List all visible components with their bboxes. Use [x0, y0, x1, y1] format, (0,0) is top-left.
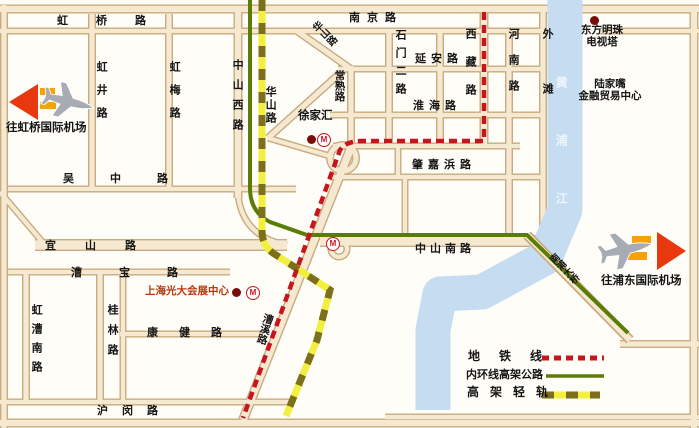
shanghai-transit-map: 虹桥路 南京路 华山路 华山路 中山西路 常熟路 石门二路 延安路 西藏路 河南…: [0, 0, 699, 428]
landmark-label-oriental-pearl: 东方明珠 电视塔: [570, 25, 634, 48]
road-label-henan: 河南路: [507, 28, 519, 106]
road-label-xizang: 西藏路: [464, 28, 476, 112]
metro-icon: M: [317, 133, 331, 147]
road-label-guilin: 桂林路: [106, 304, 118, 364]
metro-icon: M: [326, 237, 340, 251]
road-label-hongcao-south: 虹漕南路: [30, 304, 42, 380]
road-label-hongjing: 虹井路: [95, 61, 107, 130]
landmark-label-xujiahui: 徐家汇: [298, 110, 333, 123]
legend-label-inner-ring: 内环线高架公路: [466, 369, 543, 381]
road-label-wuzhong: 吴中路: [63, 173, 204, 185]
road-label-huaihai: 淮海路: [413, 100, 461, 112]
left-arrow-icon: [9, 84, 38, 120]
pudong-airport-icon: [595, 226, 686, 273]
road-label-zhongshan-south: 中山南路: [415, 243, 475, 255]
road-label-yishan: 宜山路: [45, 240, 165, 252]
road-label-zhongshan-west: 中山西路: [231, 59, 243, 139]
road-label-nanjing: 南京路: [349, 12, 403, 24]
xujiahui-dot: [307, 135, 316, 144]
legend-label-light-rail: 高架轻轨: [467, 386, 559, 399]
road-label-shimen-er: 石门二路: [394, 29, 406, 101]
hongqiao-airport-icon: [9, 78, 98, 125]
airplane-icon: [595, 226, 656, 273]
road-label-huashan-lower: 华山路: [264, 86, 276, 125]
river-label: 黄浦江: [554, 76, 567, 250]
road-label-kangjian: 康健路: [147, 327, 243, 339]
road-label-changshu: 常熟路: [333, 70, 345, 102]
landmark-label-everbright: 上海光大会展中心: [145, 286, 229, 298]
road-label-hongqiao: 虹桥路: [57, 15, 174, 27]
road-label-yanan: 延安路: [415, 53, 463, 65]
airport-label-pudong: 往浦东国际机场: [601, 275, 682, 288]
legend-label-metro: 地铁线: [468, 350, 561, 363]
metro-icon: M: [246, 286, 260, 300]
road-label-hongmei: 虹梅路: [168, 61, 180, 130]
everbright-dot: [232, 288, 241, 297]
oriental-pearl-dot: [590, 16, 599, 25]
right-arrow-icon: [657, 232, 686, 270]
road-label-waitan: 外滩: [541, 28, 553, 138]
road-label-caobao: 漕宝路: [71, 267, 215, 279]
airport-label-hongqiao: 往虹桥国际机场: [6, 122, 87, 135]
road-label-humin: 沪闵路: [97, 405, 172, 417]
landmark-label-lujiazui: 陆家嘴 金融贸易中心: [562, 79, 658, 102]
road-label-zhaojiabang: 肇嘉浜路: [412, 159, 476, 171]
